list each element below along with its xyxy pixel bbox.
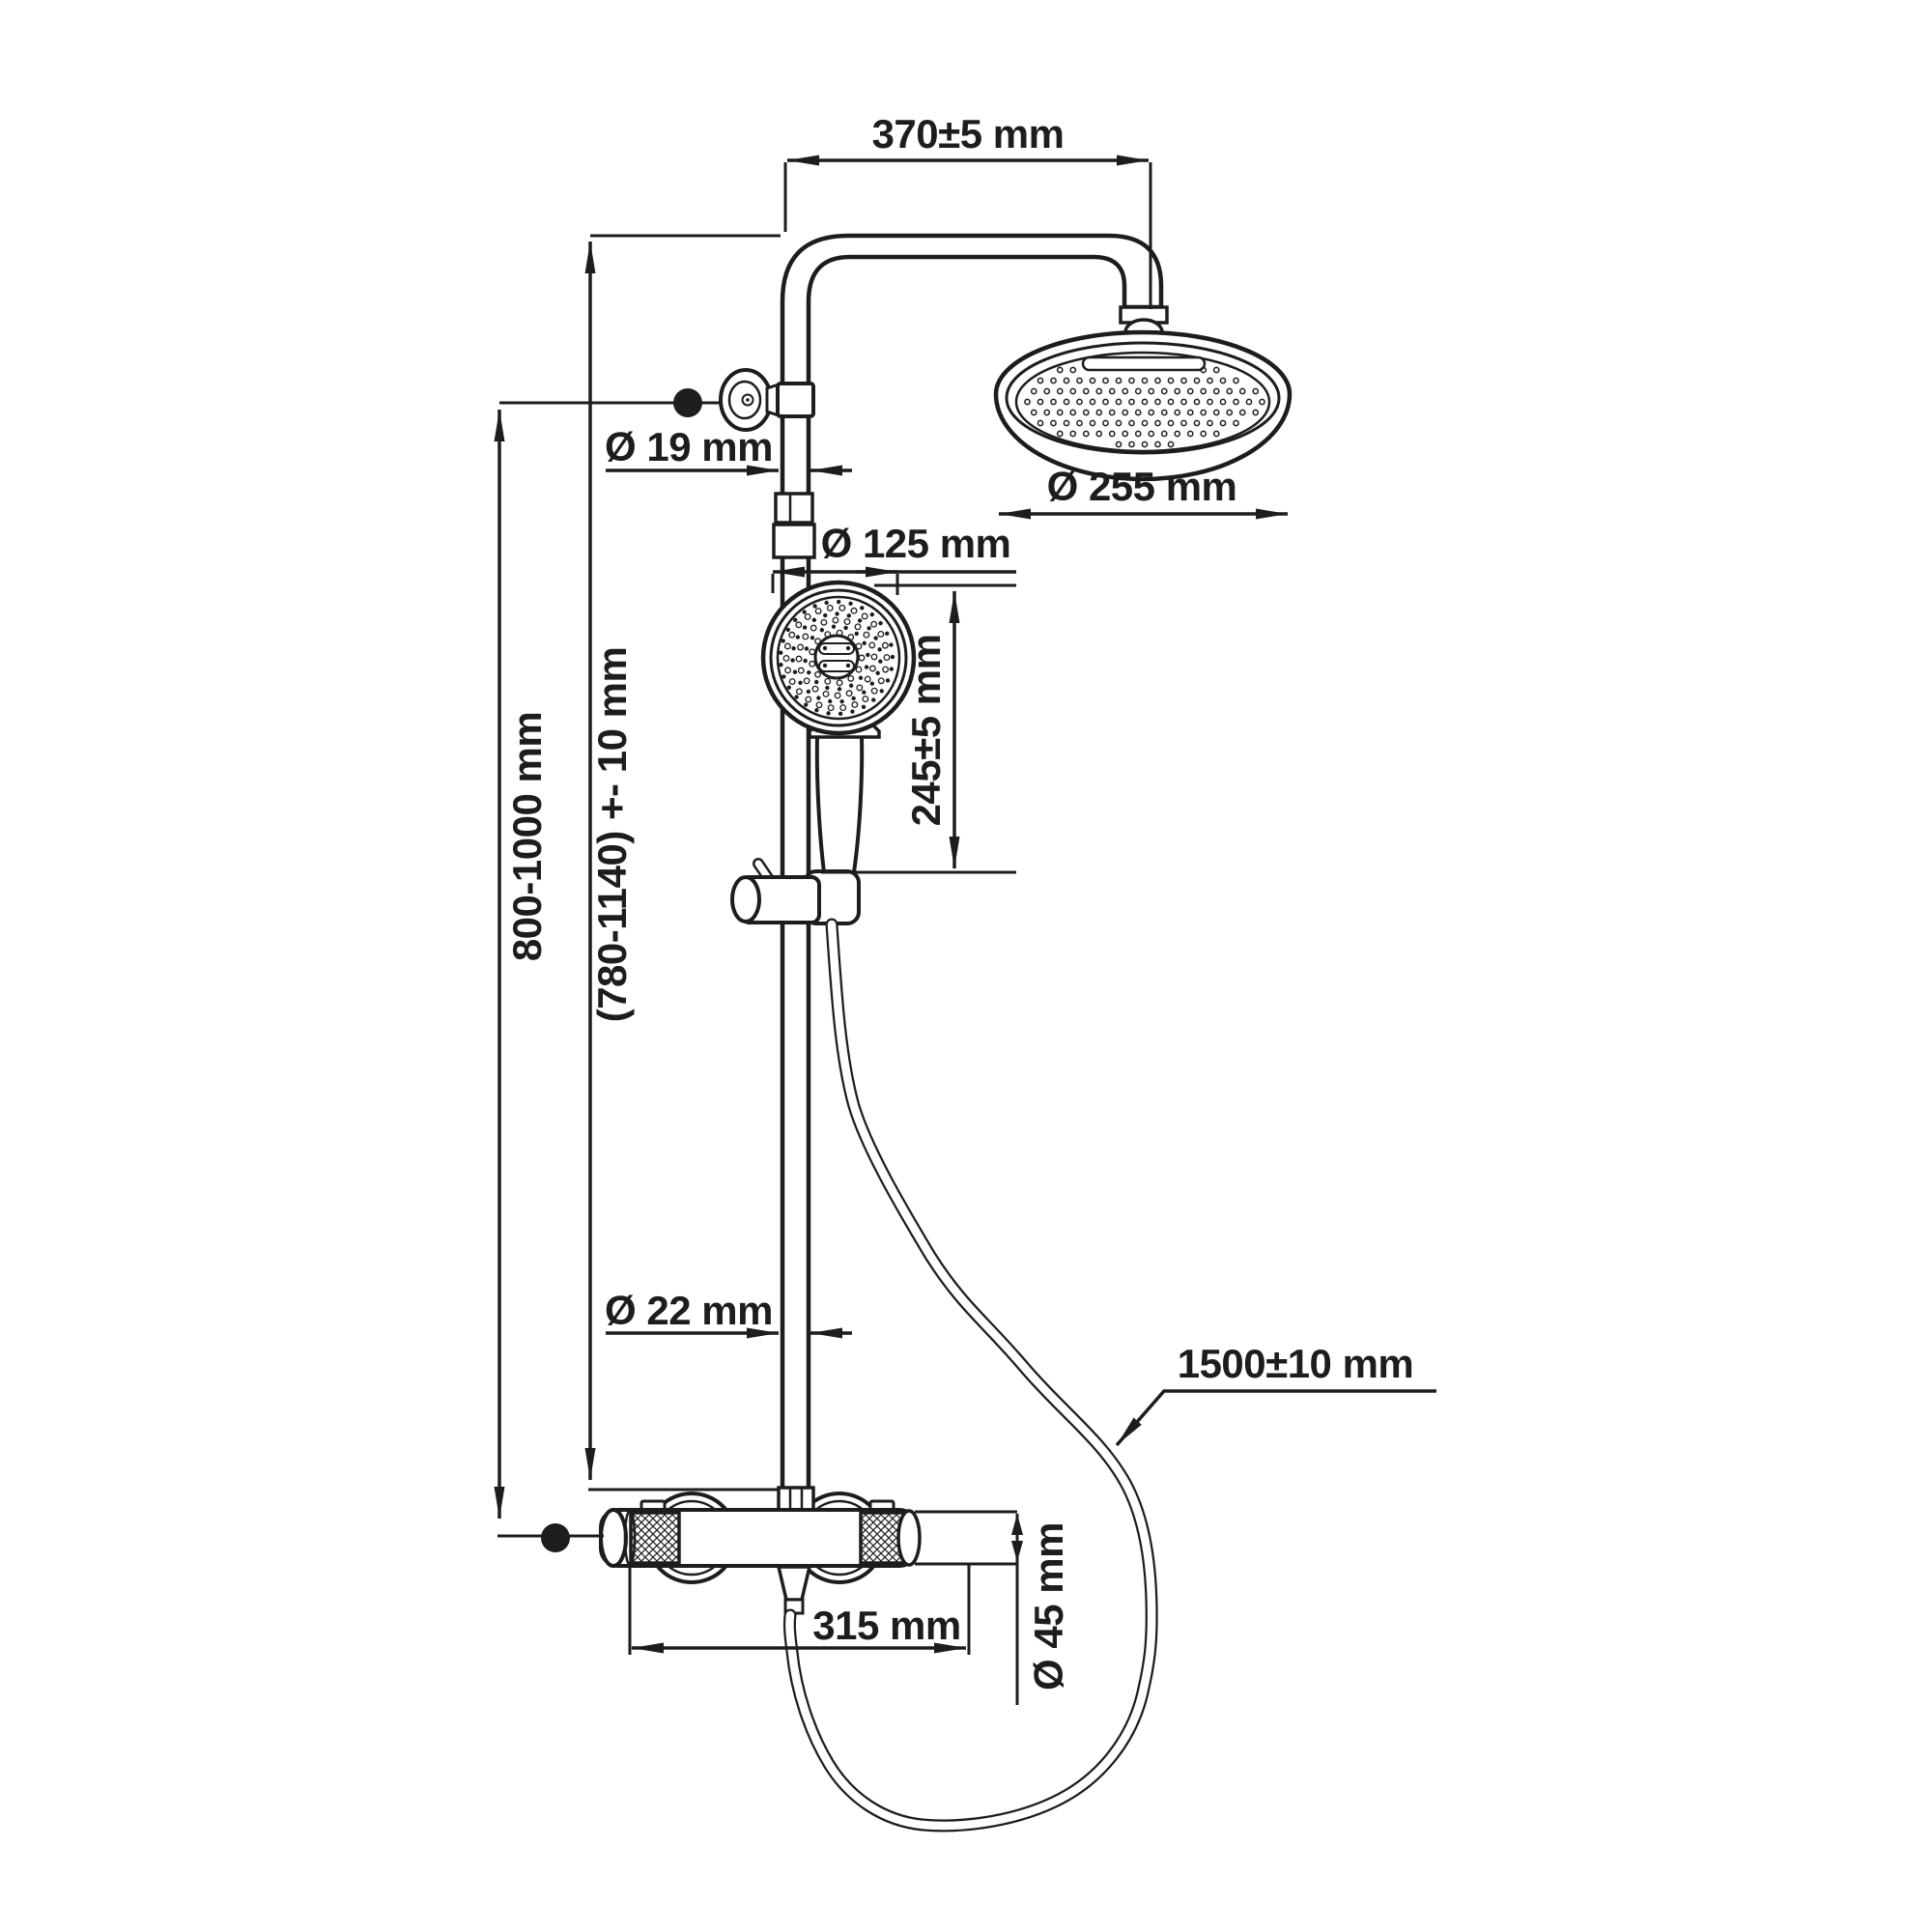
label-riser-range: (780-1140) +- 10 mm <box>589 647 636 1023</box>
dim-hose-leader <box>1117 1391 1436 1445</box>
hand-shower-handle <box>817 736 862 872</box>
label-wall-to-mixer: 800-1000 mm <box>504 712 551 961</box>
shower-line-art <box>0 0 1932 1932</box>
holder-knob-cap <box>732 877 759 922</box>
mixer-right-cap <box>898 1511 920 1565</box>
label-hand-shower-diameter: Ø 125 mm <box>821 521 1011 567</box>
thermostatic-mixer <box>601 1488 920 1613</box>
wall-outlet-point-top <box>673 388 702 417</box>
label-mixer-diameter: Ø 45 mm <box>1026 1522 1072 1690</box>
pipe-joint-sleeve <box>774 494 814 557</box>
label-rain-head-diameter: Ø 255 mm <box>1047 464 1237 510</box>
dimension-lines <box>497 160 1436 1705</box>
label-riser-bottom-diameter: Ø 22 mm <box>605 1288 773 1334</box>
mixer-left-cap <box>601 1510 626 1566</box>
label-riser-top-diameter: Ø 19 mm <box>605 424 773 470</box>
label-mixer-width: 315 mm <box>812 1603 960 1649</box>
mixer-left-handle <box>631 1513 679 1563</box>
wall-outlet-point-bottom <box>541 1523 570 1552</box>
label-hand-shower-length: 245±5 mm <box>903 635 950 827</box>
shower-hose <box>789 924 1151 1826</box>
rain-shower-head <box>996 332 1290 479</box>
label-arm-reach: 370±5 mm <box>872 111 1065 157</box>
label-hose-length: 1500±10 mm <box>1178 1341 1414 1387</box>
technical-drawing-page: 370±5 mm Ø 255 mm Ø 19 mm Ø 125 mm 245±5… <box>0 0 1932 1932</box>
hose-outlet <box>779 1567 810 1600</box>
